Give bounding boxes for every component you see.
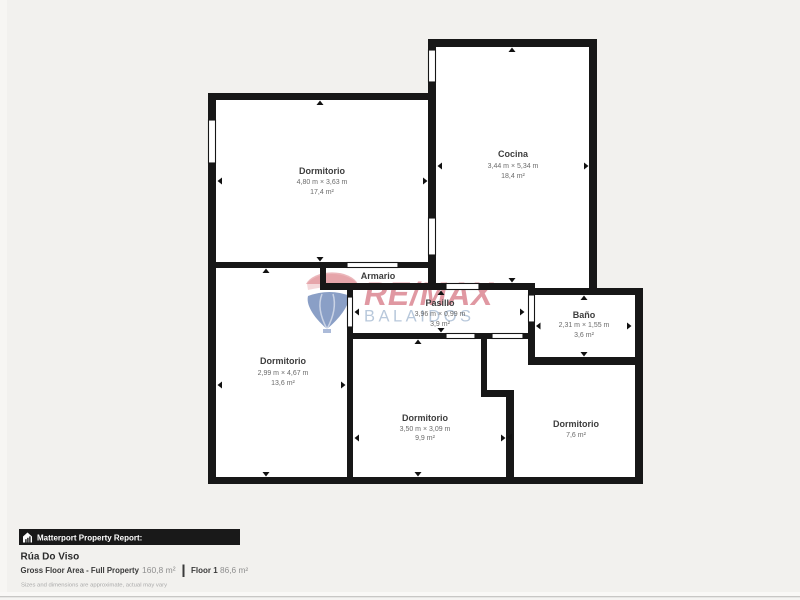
- svg-text:3,44 m × 5,34 m: 3,44 m × 5,34 m: [488, 163, 539, 170]
- svg-text:3,9 m²: 3,9 m²: [430, 321, 451, 328]
- svg-text:86,6 m²: 86,6 m²: [220, 565, 248, 575]
- svg-text:160,8 m²: 160,8 m²: [142, 565, 176, 575]
- svg-text:Dormitorio: Dormitorio: [299, 166, 346, 176]
- svg-text:Dormitorio: Dormitorio: [553, 419, 600, 429]
- svg-text:Sizes and dimensions are appro: Sizes and dimensions are approximate, ac…: [21, 583, 167, 589]
- svg-text:Dormitorio: Dormitorio: [260, 356, 307, 366]
- svg-text:Armario: Armario: [361, 271, 396, 281]
- svg-text:Gross Floor Area - Full Proper: Gross Floor Area - Full Property: [21, 566, 140, 575]
- svg-text:Pasillo: Pasillo: [425, 298, 455, 308]
- svg-text:3,96 m × 0,99 m: 3,96 m × 0,99 m: [415, 311, 466, 318]
- svg-text:2,99 m × 4,67 m: 2,99 m × 4,67 m: [258, 370, 309, 377]
- svg-text:Rúa Do Viso: Rúa Do Viso: [21, 552, 80, 563]
- svg-text:Dormitorio: Dormitorio: [402, 413, 449, 423]
- svg-text:9,9 m²: 9,9 m²: [415, 435, 436, 442]
- svg-text:Matterport Property Report:: Matterport Property Report:: [37, 534, 142, 543]
- svg-text:18,4 m²: 18,4 m²: [501, 173, 525, 180]
- svg-text:3,50 m × 3,09 m: 3,50 m × 3,09 m: [400, 426, 451, 433]
- svg-text:Baño: Baño: [573, 310, 596, 320]
- svg-text:Floor 1: Floor 1: [191, 566, 218, 575]
- svg-text:Cocina: Cocina: [498, 149, 529, 159]
- svg-text:7,6 m²: 7,6 m²: [566, 432, 587, 439]
- svg-text:2,31 m × 1,55 m: 2,31 m × 1,55 m: [559, 322, 610, 329]
- svg-text:17,4 m²: 17,4 m²: [310, 189, 334, 196]
- svg-text:4,80 m × 3,63 m: 4,80 m × 3,63 m: [297, 179, 348, 186]
- svg-text:3,6 m²: 3,6 m²: [574, 332, 595, 339]
- svg-text:13,6 m²: 13,6 m²: [271, 380, 295, 387]
